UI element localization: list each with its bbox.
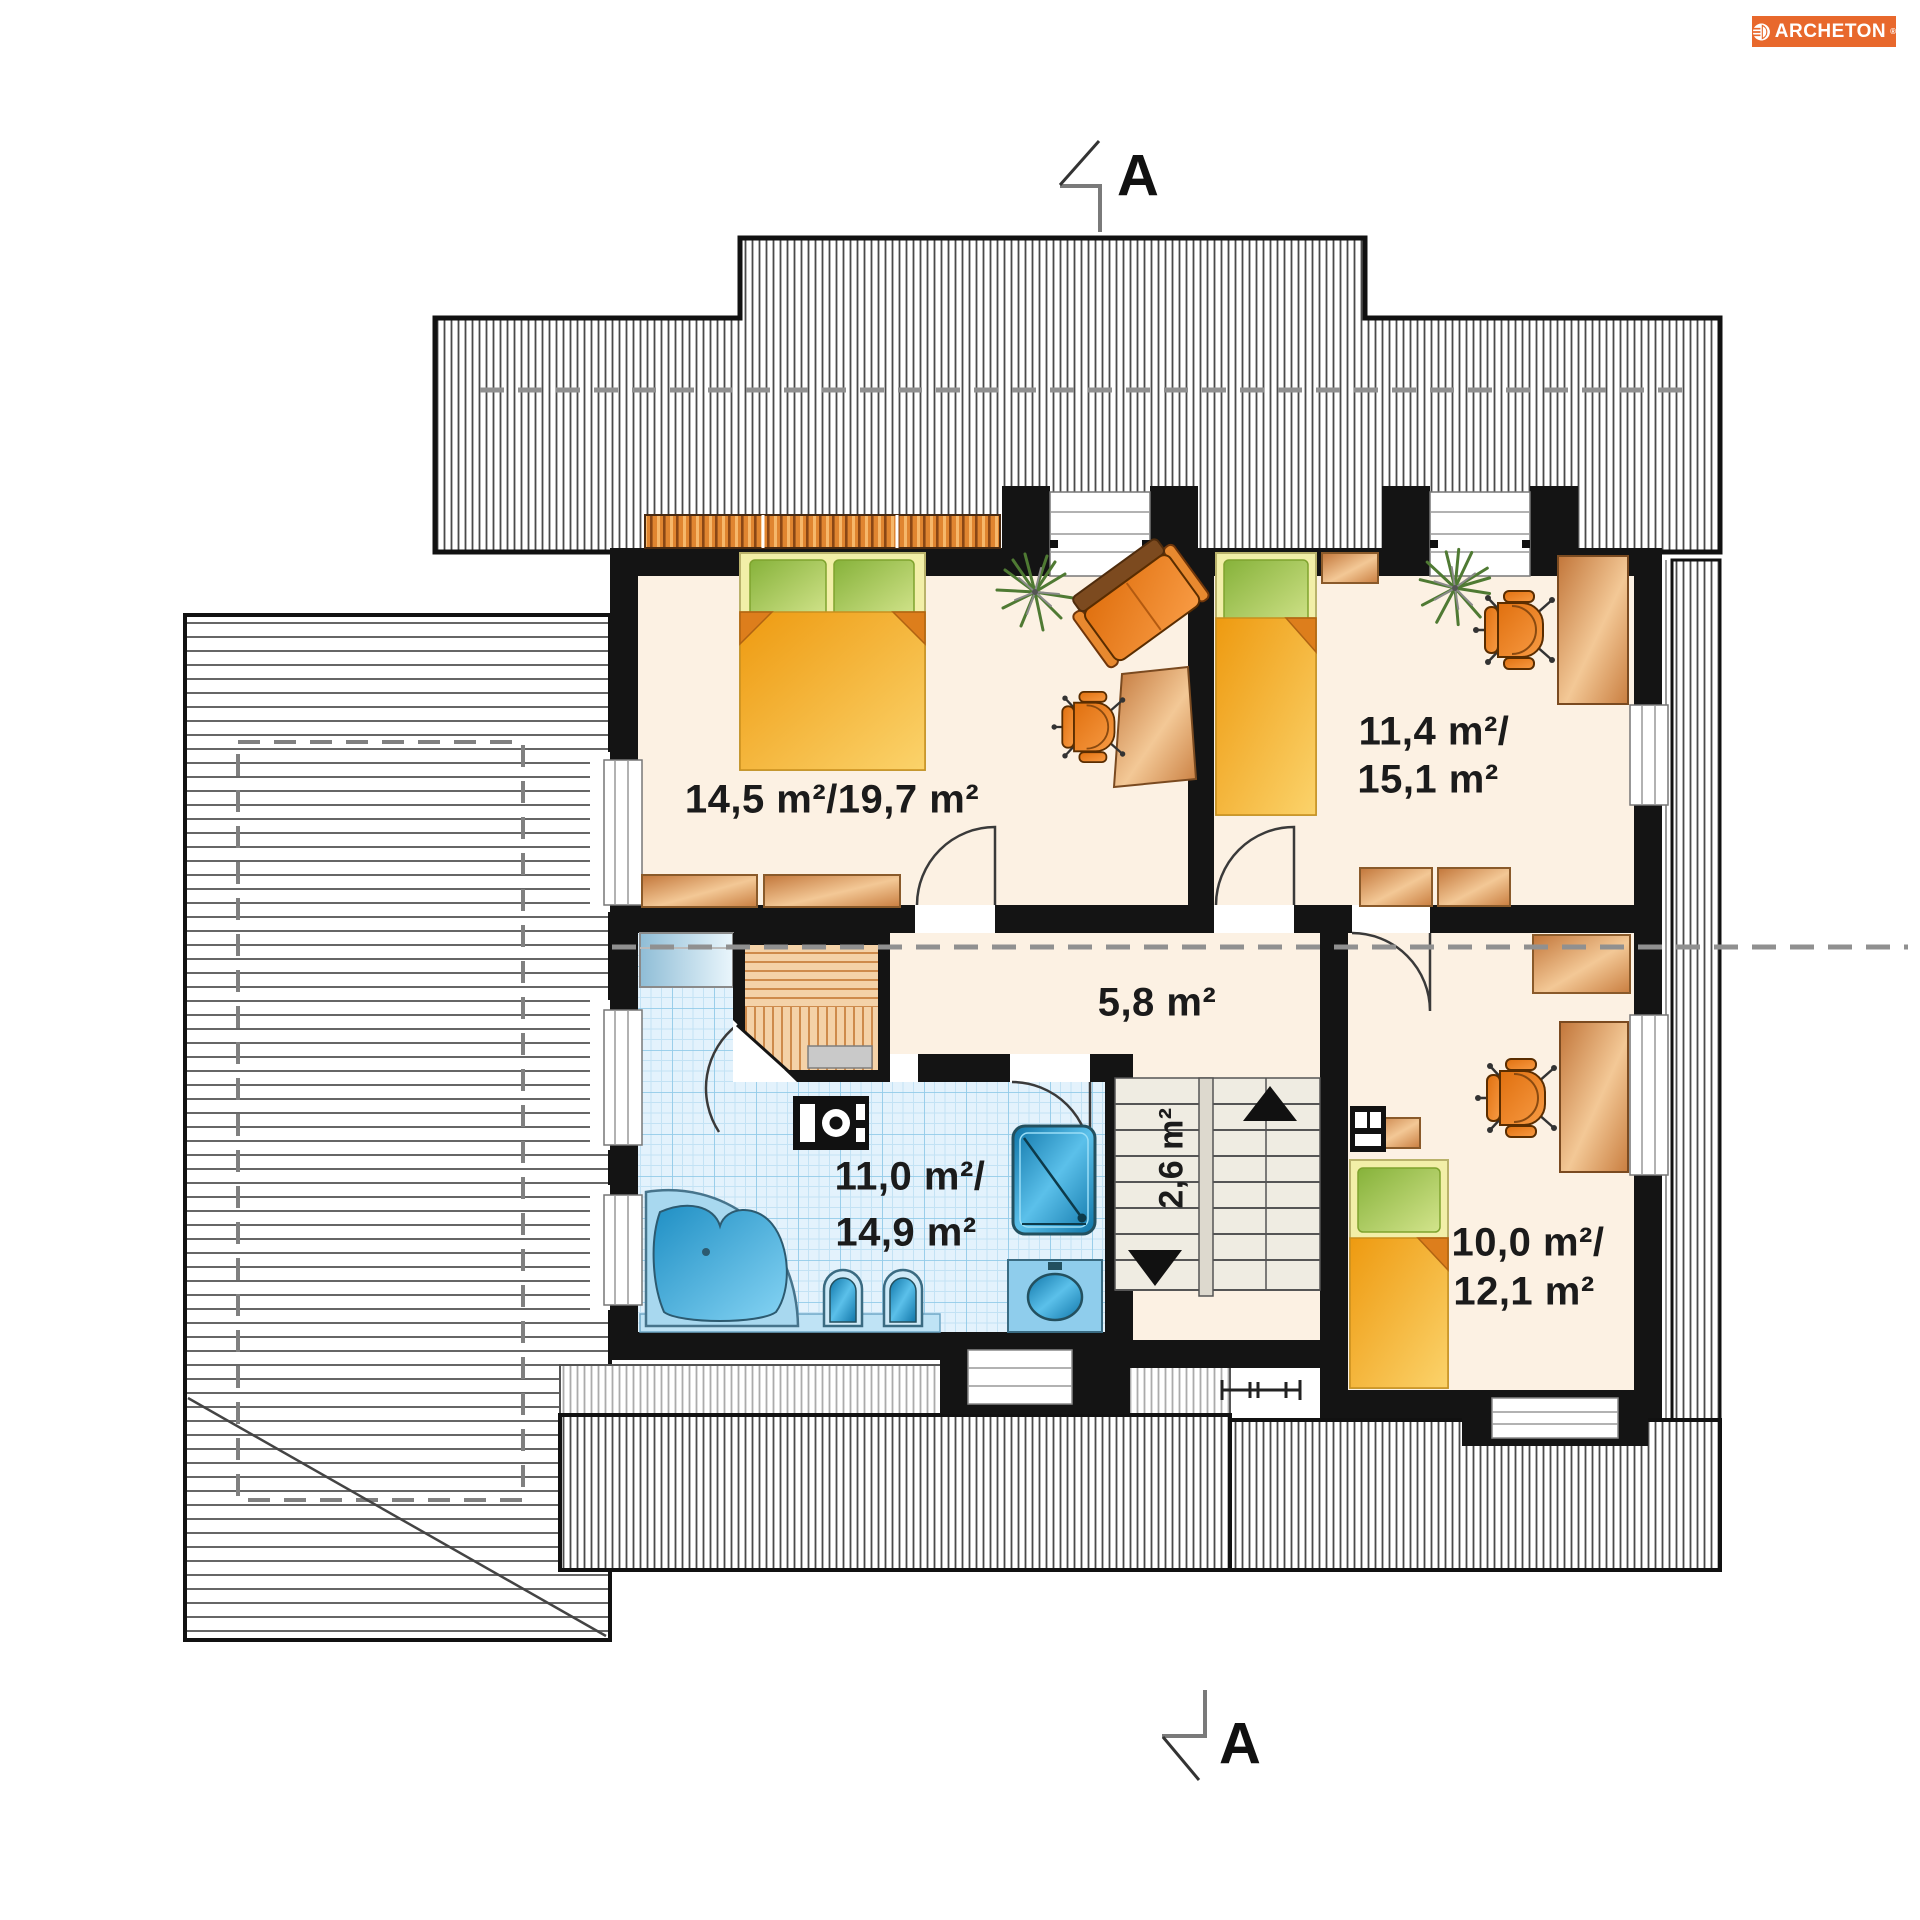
cabinet-icon	[642, 875, 757, 907]
stair-stringer	[1199, 1078, 1213, 1296]
area-label-bedroom-upper-right-line2: 15,1 m²	[1357, 758, 1498, 803]
floor-plan-page: 14,5 m²/19,7 m² 11,4 m²/ 15,1 m² 5,8 m² …	[0, 0, 1920, 1920]
registered-mark: ®	[1890, 27, 1896, 37]
section-marker-top-label: A	[1117, 143, 1159, 210]
area-label-bathroom-line2: 14,9 m²	[835, 1211, 976, 1256]
area-label-bathroom-line1: 11,0 m²/	[835, 1155, 986, 1200]
room-divider-wall-horizontal	[1430, 905, 1634, 933]
bedroom-dormer-window	[1492, 1398, 1618, 1438]
area-label-bedroom-main: 14,5 m²/19,7 m²	[685, 778, 979, 823]
floor-plan-drawing	[0, 0, 1920, 1920]
archeton-logo: ARCHETON®	[1752, 16, 1896, 47]
section-cut-bottom	[1162, 1690, 1205, 1736]
sauna-icon	[733, 933, 890, 1082]
garage-roof-plane	[185, 615, 610, 1640]
single-bed-icon	[1216, 553, 1316, 815]
bathroom-top-wall-b	[1090, 1054, 1105, 1082]
wardrobe-icon	[645, 515, 1000, 548]
right-roof-strip	[1672, 560, 1720, 1420]
single-bed-icon	[1350, 1160, 1448, 1388]
desk-icon	[1560, 1022, 1628, 1172]
archeton-logo-text: ARCHETON	[1775, 21, 1886, 43]
hall-bottom-wall	[1130, 1340, 1348, 1368]
staircase	[1115, 1078, 1320, 1296]
area-label-staircase: 2,6 m²	[1153, 1107, 1192, 1208]
area-label-hall: 5,8 m²	[1098, 981, 1217, 1026]
right-exterior-wall	[1634, 548, 1662, 1418]
shower-icon	[1013, 1126, 1095, 1234]
cabinet-icon	[1360, 868, 1432, 906]
cabinet-icon	[764, 875, 900, 907]
left-wall-windows	[590, 752, 642, 1310]
dormer2-side-wall-left	[1382, 486, 1430, 576]
section-cut-top	[1060, 186, 1100, 232]
double-bed-icon	[740, 553, 925, 770]
shelf-icon	[1322, 553, 1378, 583]
bidet-icon	[884, 1270, 922, 1326]
appliance-icon	[1350, 1106, 1386, 1152]
dormer-window-2	[1430, 492, 1530, 576]
bathroom-dormer-window	[968, 1350, 1072, 1404]
desk-icon	[1558, 556, 1628, 704]
desk-icon	[1114, 667, 1196, 787]
sauna-bench	[808, 1046, 872, 1068]
bathroom-top-wall-a	[918, 1054, 1010, 1082]
hall-top-wall-a	[610, 905, 915, 933]
wall-connector	[1105, 1332, 1133, 1368]
washbasin-icon	[1008, 1260, 1102, 1332]
section-marker-bottom-label: A	[1219, 1711, 1261, 1778]
toilet-icon	[824, 1270, 862, 1326]
wardrobe-icon	[1533, 935, 1630, 993]
bathroom-bottom-wall	[610, 1332, 940, 1360]
hall-top-wall-b	[995, 905, 1214, 933]
roof-vent-icon	[1222, 1380, 1300, 1400]
archeton-mark-icon	[1752, 22, 1771, 42]
area-label-bedroom-upper-right-line1: 11,4 m²/	[1359, 710, 1510, 755]
cabinet-icon	[1438, 868, 1510, 906]
sauna-heater-icon	[793, 1096, 869, 1150]
area-label-bedroom-lower-right-line1: 10,0 m²/	[1452, 1221, 1605, 1266]
area-label-bedroom-lower-right-line2: 12,1 m²	[1453, 1270, 1594, 1315]
roof-window-icon	[640, 933, 733, 987]
